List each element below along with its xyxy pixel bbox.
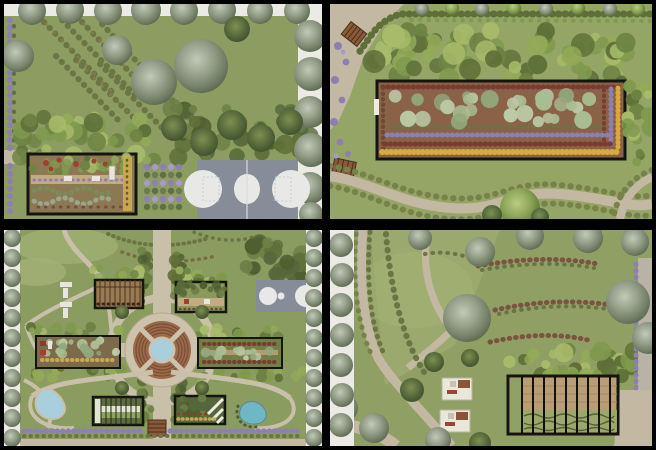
panel-top-left bbox=[4, 4, 322, 219]
panel-bottom-right bbox=[330, 230, 652, 446]
greenhouse-sw bbox=[93, 397, 143, 425]
panel-bottom-left bbox=[4, 230, 322, 446]
flower-bed-se bbox=[175, 394, 225, 424]
basketball-court bbox=[184, 160, 310, 219]
flower-bed-east bbox=[198, 338, 282, 368]
south-walk bbox=[20, 439, 306, 446]
picnic-deck-1 bbox=[442, 378, 472, 400]
steps bbox=[148, 420, 166, 436]
sunken-garden bbox=[28, 152, 136, 214]
pergola-nw bbox=[95, 280, 143, 308]
top-road bbox=[4, 4, 322, 16]
central-pool bbox=[151, 339, 173, 361]
garden-bench-2 bbox=[92, 176, 100, 181]
se-plaza bbox=[614, 390, 652, 446]
flower-bed-west bbox=[36, 336, 120, 368]
flower-parterre bbox=[374, 81, 625, 159]
slatted-pergola bbox=[508, 376, 618, 434]
pergola-open-bay bbox=[510, 378, 522, 432]
parterre-entrance bbox=[374, 99, 379, 115]
panel-top-right bbox=[330, 4, 652, 219]
garden-bench-1 bbox=[64, 176, 72, 181]
street-trees-east bbox=[305, 230, 322, 446]
garden-kiosk bbox=[109, 166, 115, 180]
street-trees-west bbox=[4, 230, 21, 446]
picnic-deck-2 bbox=[440, 410, 470, 432]
collage-frame bbox=[0, 0, 656, 450]
